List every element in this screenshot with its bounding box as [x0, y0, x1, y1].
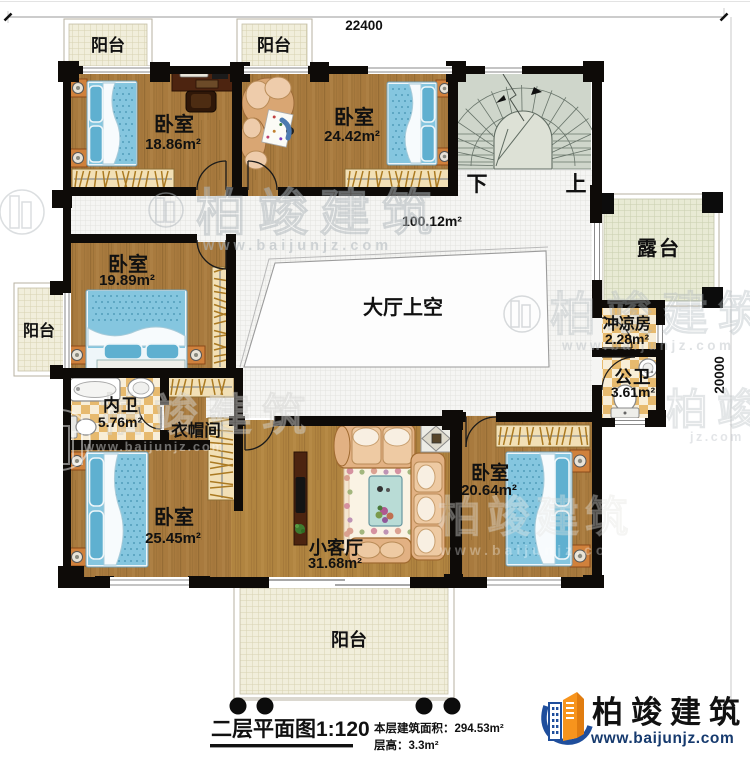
svg-text:层高：3.3m²: 层高：3.3m²	[373, 738, 439, 752]
svg-text:卧室: 卧室	[471, 461, 509, 484]
svg-text:www.baijunjz.com: www.baijunjz.com	[590, 730, 734, 747]
svg-text:下: 下	[467, 173, 488, 196]
svg-text:卧室: 卧室	[154, 505, 194, 529]
svg-text:卧室: 卧室	[154, 112, 194, 136]
svg-text:18.86m²: 18.86m²	[145, 136, 201, 153]
svg-text:2.28m²: 2.28m²	[605, 331, 650, 347]
svg-text:19.89m²: 19.89m²	[99, 272, 155, 289]
svg-text:内卫: 内卫	[103, 395, 139, 415]
svg-text:20000: 20000	[712, 356, 727, 394]
svg-text:阳台: 阳台	[257, 35, 291, 55]
svg-text:阳台: 阳台	[91, 35, 125, 55]
svg-text:阳台: 阳台	[331, 629, 367, 650]
svg-text:卧室: 卧室	[334, 105, 374, 129]
svg-text:本层建筑面积：294.53m²: 本层建筑面积：294.53m²	[374, 721, 504, 735]
svg-text:大厅上空: 大厅上空	[363, 295, 443, 319]
svg-text:5.76m²: 5.76m²	[98, 414, 143, 430]
svg-text:上: 上	[566, 173, 587, 196]
svg-text:露台: 露台	[637, 236, 681, 260]
svg-text:二层平面图1:120: 二层平面图1:120	[211, 718, 370, 741]
svg-text:柏竣建筑: 柏竣建筑	[592, 695, 748, 730]
svg-text:100.12m²: 100.12m²	[402, 213, 462, 229]
svg-text:3.61m²: 3.61m²	[611, 384, 656, 400]
svg-text:衣帽间: 衣帽间	[171, 420, 221, 440]
svg-text:24.42m²: 24.42m²	[324, 128, 380, 145]
svg-text:31.68m²: 31.68m²	[308, 556, 362, 572]
svg-text:20.64m²: 20.64m²	[461, 482, 517, 499]
svg-text:小客厅: 小客厅	[309, 537, 363, 558]
svg-text:25.45m²: 25.45m²	[145, 530, 201, 547]
svg-text:阳台: 阳台	[23, 321, 55, 340]
svg-text:22400: 22400	[345, 18, 383, 33]
